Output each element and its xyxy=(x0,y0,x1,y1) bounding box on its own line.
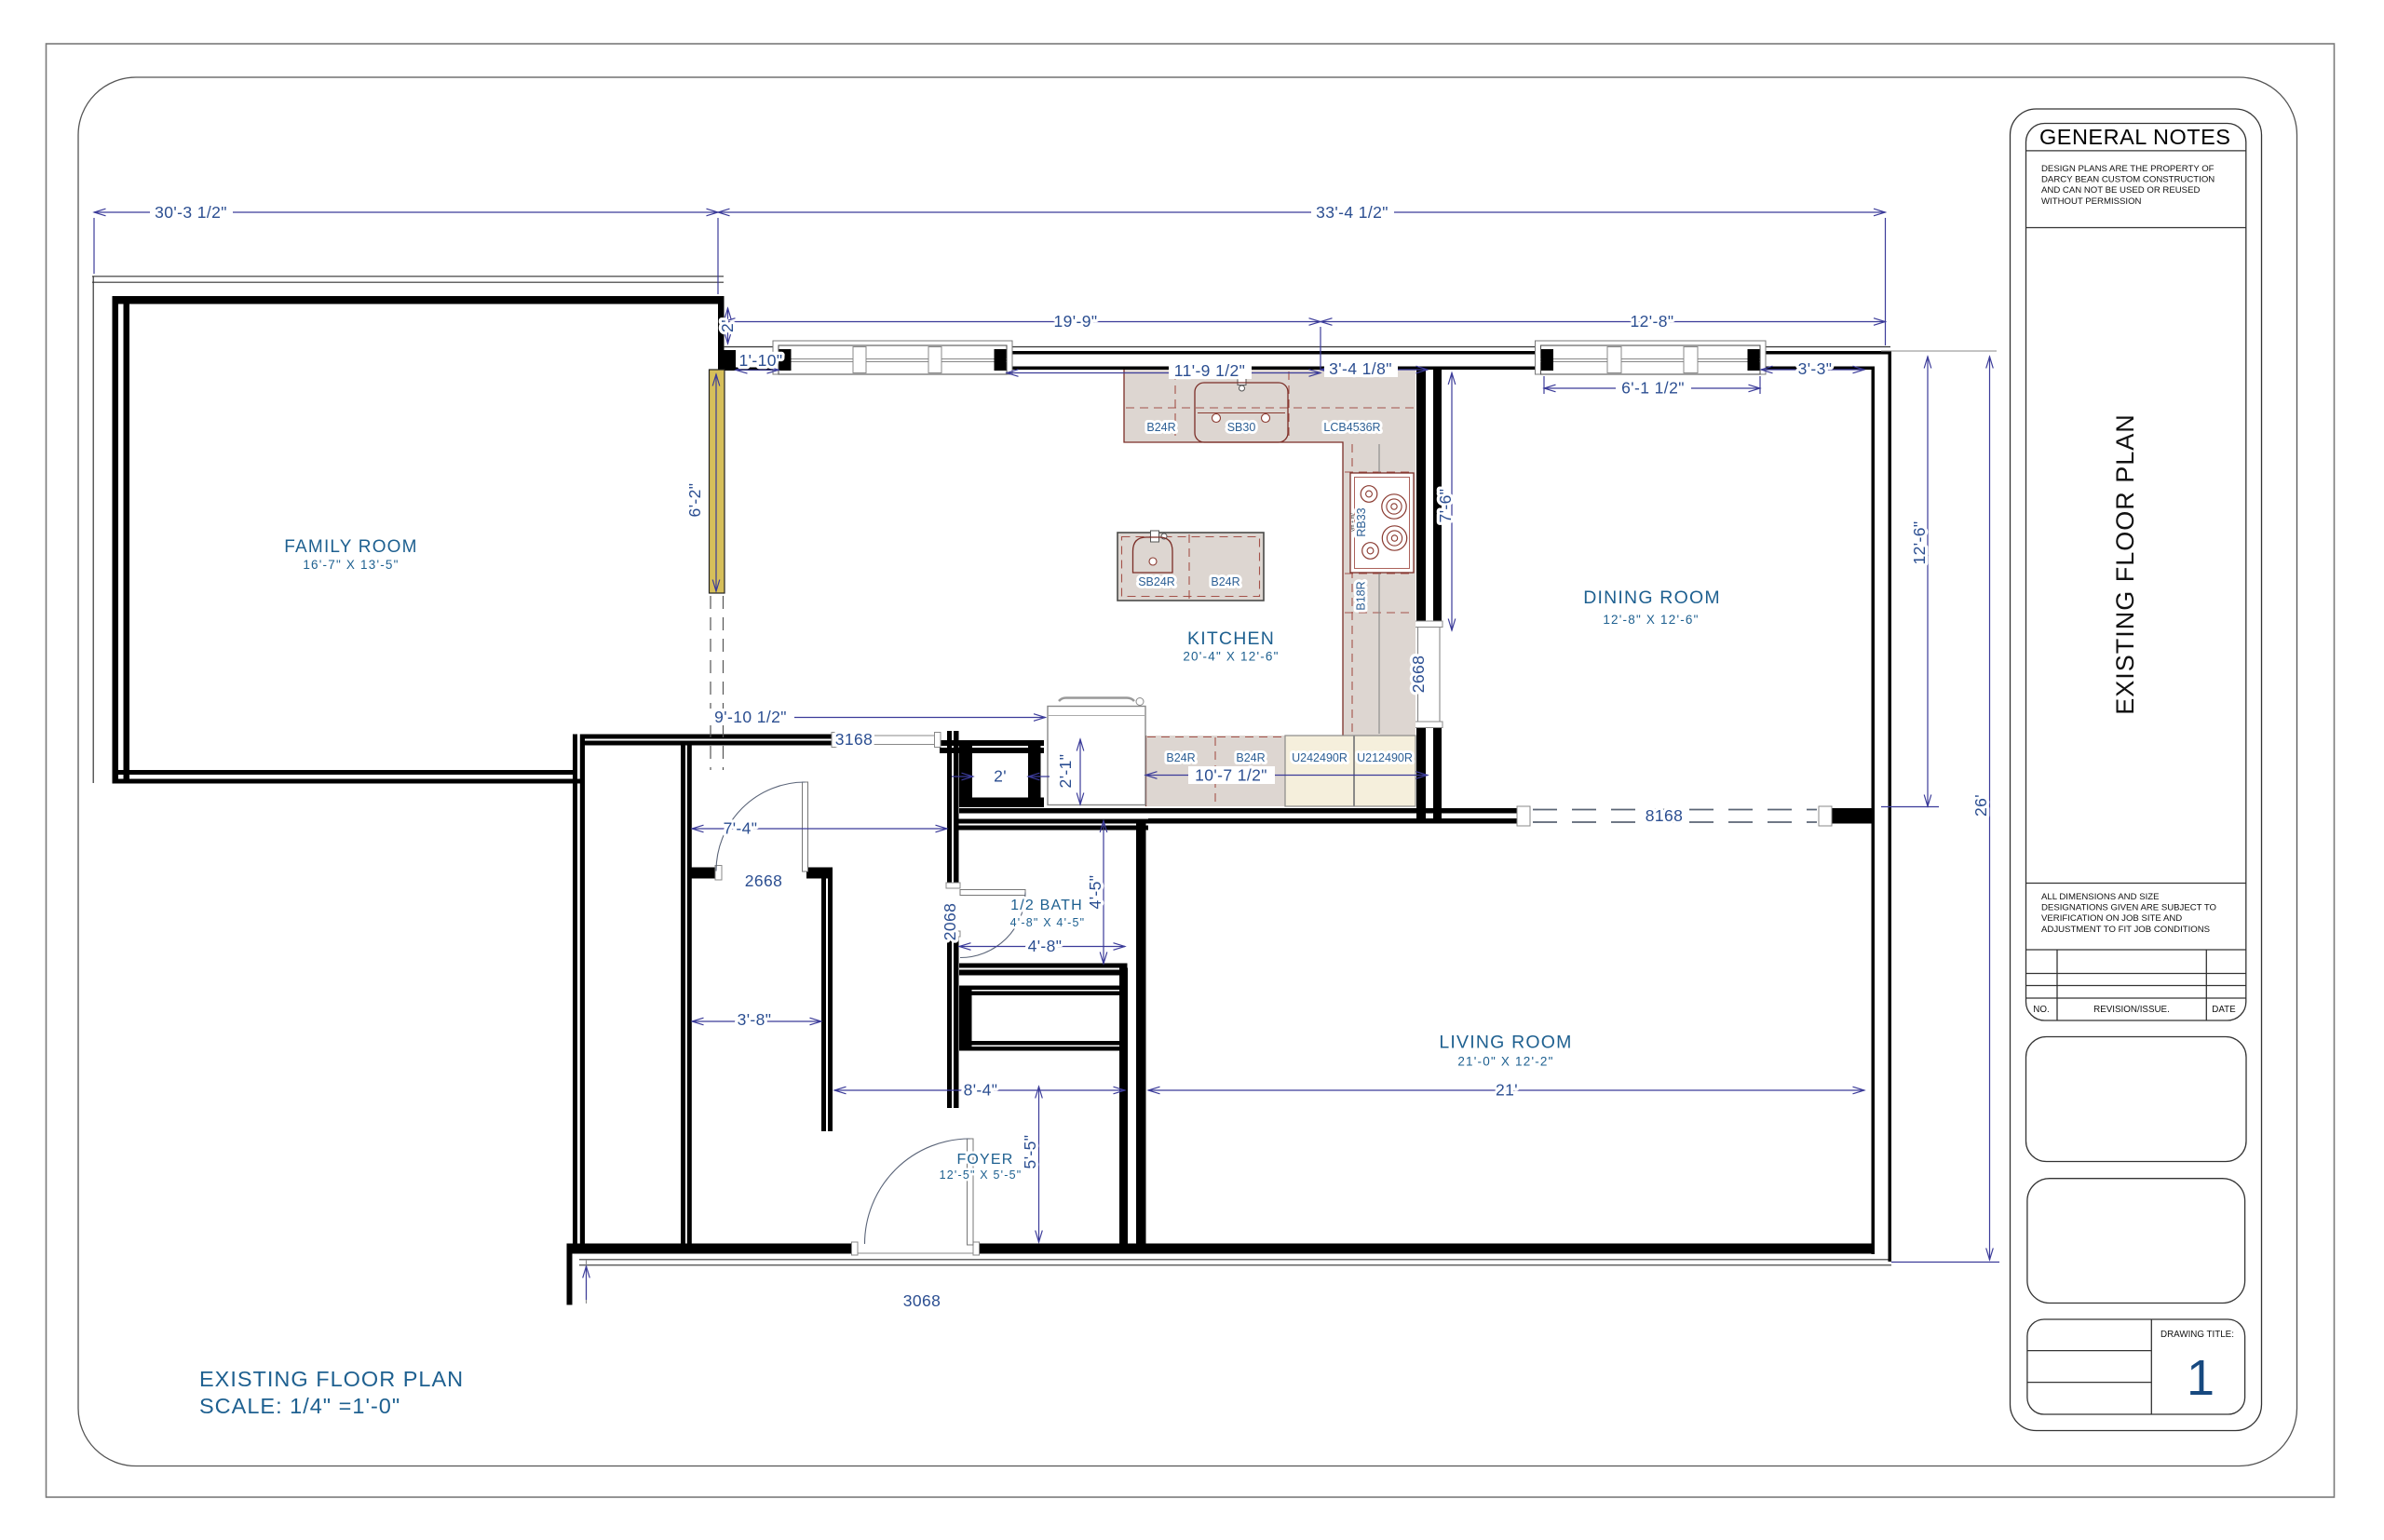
svg-text:1: 1 xyxy=(2187,1350,2215,1406)
svg-text:DINING ROOM: DINING ROOM xyxy=(1583,588,1721,608)
svg-text:LIVING ROOM: LIVING ROOM xyxy=(1439,1033,1572,1053)
svg-text:REVISION/ISSUE.: REVISION/ISSUE. xyxy=(2093,1005,2170,1015)
svg-text:DATE: DATE xyxy=(2212,1005,2236,1015)
svg-text:30'-3 1/2": 30'-3 1/2" xyxy=(155,203,227,222)
svg-text:1'-10": 1'-10" xyxy=(739,351,783,370)
svg-text:WITHOUT PERMISSION: WITHOUT PERMISSION xyxy=(2041,196,2142,207)
svg-text:SB24R: SB24R xyxy=(1138,575,1175,588)
svg-text:ALL DIMENSIONS AND SIZE: ALL DIMENSIONS AND SIZE xyxy=(2041,892,2160,902)
svg-text:EXISTING FLOOR PLAN: EXISTING FLOOR PLAN xyxy=(199,1367,464,1391)
svg-text:12'-8": 12'-8" xyxy=(1631,312,1674,331)
svg-text:19'-9": 19'-9" xyxy=(1054,312,1098,331)
svg-text:4'-5": 4'-5" xyxy=(1086,875,1104,910)
svg-text:2068: 2068 xyxy=(941,903,959,941)
svg-text:ADJUSTMENT TO FIT JOB CONDITIO: ADJUSTMENT TO FIT JOB CONDITIONS xyxy=(2041,925,2210,935)
svg-text:4'-8" X 4'-5": 4'-8" X 4'-5" xyxy=(1010,916,1086,929)
svg-text:20'-4" X 12'-6": 20'-4" X 12'-6" xyxy=(1183,650,1279,664)
svg-text:21': 21' xyxy=(1496,1081,1518,1100)
svg-text:GENERAL NOTES: GENERAL NOTES xyxy=(2039,125,2230,149)
svg-text:2': 2' xyxy=(718,319,737,332)
svg-text:FOYER: FOYER xyxy=(956,1152,1013,1168)
svg-text:9'-10 1/2": 9'-10 1/2" xyxy=(714,708,787,726)
svg-text:B24R: B24R xyxy=(1211,575,1239,588)
svg-text:U242490R: U242490R xyxy=(1292,751,1348,764)
svg-text:U212490R: U212490R xyxy=(1357,751,1413,764)
svg-text:KITCHEN: KITCHEN xyxy=(1187,628,1275,649)
svg-text:3168: 3168 xyxy=(835,730,874,749)
svg-text:26': 26' xyxy=(1971,794,1990,817)
svg-text:2'-1": 2'-1" xyxy=(1056,754,1075,789)
svg-text:RB33: RB33 xyxy=(1355,507,1368,536)
svg-text:4'-8": 4'-8" xyxy=(1028,937,1063,955)
svg-text:3'-3": 3'-3" xyxy=(1798,359,1833,378)
svg-text:DESIGNATIONS GIVEN ARE SUBJECT: DESIGNATIONS GIVEN ARE SUBJECT TO xyxy=(2041,903,2216,913)
svg-text:2668: 2668 xyxy=(745,871,783,890)
svg-text:3'-8": 3'-8" xyxy=(738,1010,772,1029)
svg-text:7'-4": 7'-4" xyxy=(724,819,758,838)
svg-text:B24R: B24R xyxy=(1166,751,1195,764)
svg-text:VERIFICATION ON JOB SITE AND: VERIFICATION ON JOB SITE AND xyxy=(2041,913,2182,924)
svg-text:16'-7" X 13'-5": 16'-7" X 13'-5" xyxy=(303,558,399,572)
svg-text:SB30: SB30 xyxy=(1227,421,1256,434)
svg-text:B24R: B24R xyxy=(1146,421,1175,434)
svg-text:6'-1 1/2": 6'-1 1/2" xyxy=(1621,379,1685,398)
svg-text:2': 2' xyxy=(994,767,1007,786)
svg-text:AND CAN NOT BE USED OR REUSED: AND CAN NOT BE USED OR REUSED xyxy=(2041,185,2200,196)
svg-text:LCB4536R: LCB4536R xyxy=(1323,421,1380,434)
svg-text:8'-4": 8'-4" xyxy=(964,1081,998,1100)
svg-text:7'-6": 7'-6" xyxy=(1436,489,1455,523)
svg-text:DRAWING TITLE:: DRAWING TITLE: xyxy=(2160,1330,2234,1340)
svg-text:33'-4 1/2": 33'-4 1/2" xyxy=(1316,203,1388,222)
svg-text:EXISTING FLOOR PLAN: EXISTING FLOOR PLAN xyxy=(2111,413,2139,715)
svg-text:11'-9 1/2": 11'-9 1/2" xyxy=(1174,361,1245,380)
svg-text:NO.: NO. xyxy=(2033,1005,2049,1015)
svg-text:8168: 8168 xyxy=(1646,806,1684,825)
svg-text:DARCY BEAN CUSTOM CONSTRUCTION: DARCY BEAN CUSTOM CONSTRUCTION xyxy=(2041,175,2215,185)
svg-text:5'-5": 5'-5" xyxy=(1021,1135,1039,1169)
svg-text:12'-8" X 12'-6": 12'-8" X 12'-6" xyxy=(1603,613,1699,627)
svg-text:FAMILY ROOM: FAMILY ROOM xyxy=(284,537,417,557)
svg-text:3'-4 1/8": 3'-4 1/8" xyxy=(1329,359,1392,378)
svg-text:21'-0" X 12'-2": 21'-0" X 12'-2" xyxy=(1457,1055,1553,1069)
svg-text:SCALE: 1/4" =1'-0": SCALE: 1/4" =1'-0" xyxy=(199,1394,400,1418)
svg-text:vm + m/: vm + m/ xyxy=(1350,513,1356,532)
svg-text:DESIGN PLANS ARE THE PROPERTY: DESIGN PLANS ARE THE PROPERTY OF xyxy=(2041,164,2215,174)
svg-text:6'-2": 6'-2" xyxy=(685,483,704,518)
svg-text:3068: 3068 xyxy=(903,1291,941,1310)
svg-text:12'-6": 12'-6" xyxy=(1910,521,1929,565)
svg-text:B24R: B24R xyxy=(1236,751,1265,764)
svg-text:10'-7 1/2": 10'-7 1/2" xyxy=(1195,766,1267,785)
svg-text:1/2 BATH: 1/2 BATH xyxy=(1010,898,1083,913)
svg-text:B18R: B18R xyxy=(1355,581,1368,610)
svg-text:12'-5" X 5'-5": 12'-5" X 5'-5" xyxy=(940,1169,1023,1182)
svg-text:2668: 2668 xyxy=(1409,655,1428,694)
